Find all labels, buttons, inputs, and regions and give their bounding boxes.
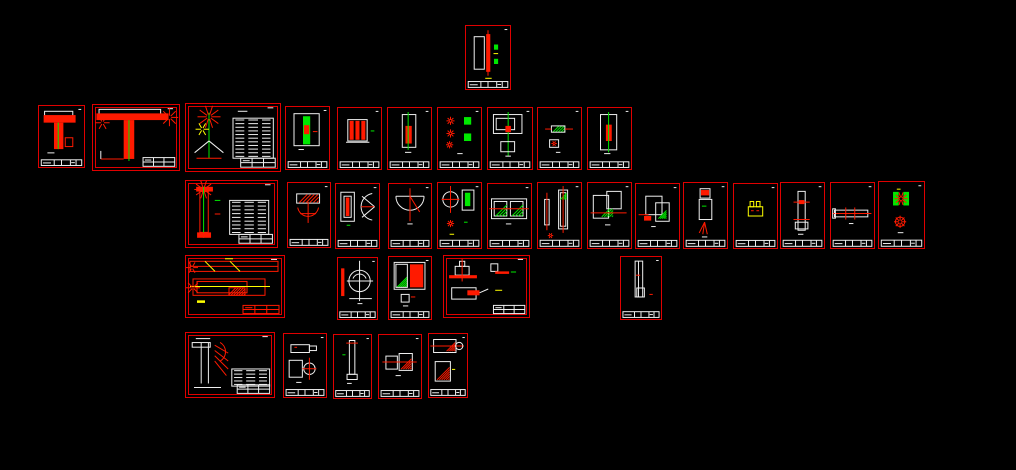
sheet-bushing-part[interactable] [387,107,432,170]
sheet-wheel-and-block[interactable] [437,182,482,249]
sheet-hatched-plate[interactable] [388,256,432,320]
sheet-drawing-wedge-block [635,183,680,249]
sheet-drawing-frame-elevation-with-table [185,332,275,398]
sheet-drawing-assembly-with-parts-list [185,103,281,172]
sheet-drawing-machine-bed-assembly [185,255,285,318]
sheet-drawing-spring-clusters [437,107,482,170]
sheet-shaft-and-sleeve[interactable] [537,182,582,249]
sheet-drawing-plate-and-wheel [283,333,327,398]
sheet-frame-column-left[interactable] [38,105,85,168]
sheet-frame-elevation-with-table[interactable] [185,332,275,398]
sheet-spring-clusters[interactable] [437,107,482,170]
sheet-roller-and-fan[interactable] [335,183,380,249]
sheet-drawing-frame-column-left [38,105,85,168]
sheet-flanged-pin[interactable] [780,182,825,249]
sheet-drawing-long-column-assembly [185,180,278,248]
sheet-drawing-slide-block [587,107,632,170]
sheet-step-blocks[interactable] [587,182,632,249]
sheet-drawing-a4-sub-assembly-top [465,25,511,90]
sheet-housing-part[interactable] [487,107,533,170]
sheet-green-sleeve-part[interactable] [285,106,330,170]
sheet-drawing-wheel-and-block [437,182,482,249]
sheet-pin-with-fan[interactable] [683,182,728,249]
sheet-drawing-housing-part [487,107,533,170]
sheet-drawing-fixture-details [443,255,530,318]
sheet-drawing-hatched-block-views [428,333,468,398]
sheet-drawing-tall-bracket [620,256,662,320]
sheet-a4-sub-assembly-top[interactable] [465,25,511,90]
sheet-semicircle-plate[interactable] [388,183,432,249]
sheet-assembly-with-parts-list[interactable] [185,103,281,172]
sheet-drawing-gear-and-flange [878,181,925,249]
sheet-drawing-arrow-bracket [537,107,582,170]
sheet-gear-and-flange[interactable] [878,181,925,249]
sheet-long-shaft[interactable] [830,182,875,249]
cad-drawing-canvas [0,0,1016,470]
sheet-drawing-green-sleeve-part [285,106,330,170]
sheet-hatched-joint[interactable] [378,334,422,399]
sheet-wedge-block[interactable] [635,183,680,249]
sheet-drawing-sector-bracket [287,182,331,248]
sheet-slide-block[interactable] [587,107,632,170]
sheet-arrow-bracket[interactable] [537,107,582,170]
sheet-drawing-small-yellow-clamp [733,183,778,249]
sheet-small-yellow-clamp[interactable] [733,183,778,249]
sheet-sector-bracket[interactable] [287,182,331,248]
sheet-drawing-thin-column [333,334,372,399]
sheet-drawing-roller-and-fan [335,183,380,249]
sheet-drawing-triple-pin-part [337,107,382,170]
sheet-hatched-block-views[interactable] [428,333,468,398]
sheet-pulley-wheel[interactable] [337,257,378,320]
sheet-long-column-assembly[interactable] [185,180,278,248]
sheet-fixture-details[interactable] [443,255,530,318]
sheet-tall-bracket[interactable] [620,256,662,320]
sheet-gantry-column[interactable] [92,104,180,171]
sheet-thin-column[interactable] [333,334,372,399]
sheet-twin-bushing-housing[interactable] [487,183,532,249]
sheet-drawing-gantry-column [92,104,180,171]
sheet-drawing-pin-with-fan [683,182,728,249]
sheet-drawing-shaft-and-sleeve [537,182,582,249]
sheet-plate-and-wheel[interactable] [283,333,327,398]
sheet-drawing-twin-bushing-housing [487,183,532,249]
sheet-drawing-flanged-pin [780,182,825,249]
sheet-drawing-hatched-plate [388,256,432,320]
sheet-machine-bed-assembly[interactable] [185,255,285,318]
sheet-drawing-pulley-wheel [337,257,378,320]
sheet-drawing-long-shaft [830,182,875,249]
sheet-drawing-bushing-part [387,107,432,170]
sheet-drawing-step-blocks [587,182,632,249]
sheet-triple-pin-part[interactable] [337,107,382,170]
sheet-drawing-semicircle-plate [388,183,432,249]
sheet-drawing-hatched-joint [378,334,422,399]
